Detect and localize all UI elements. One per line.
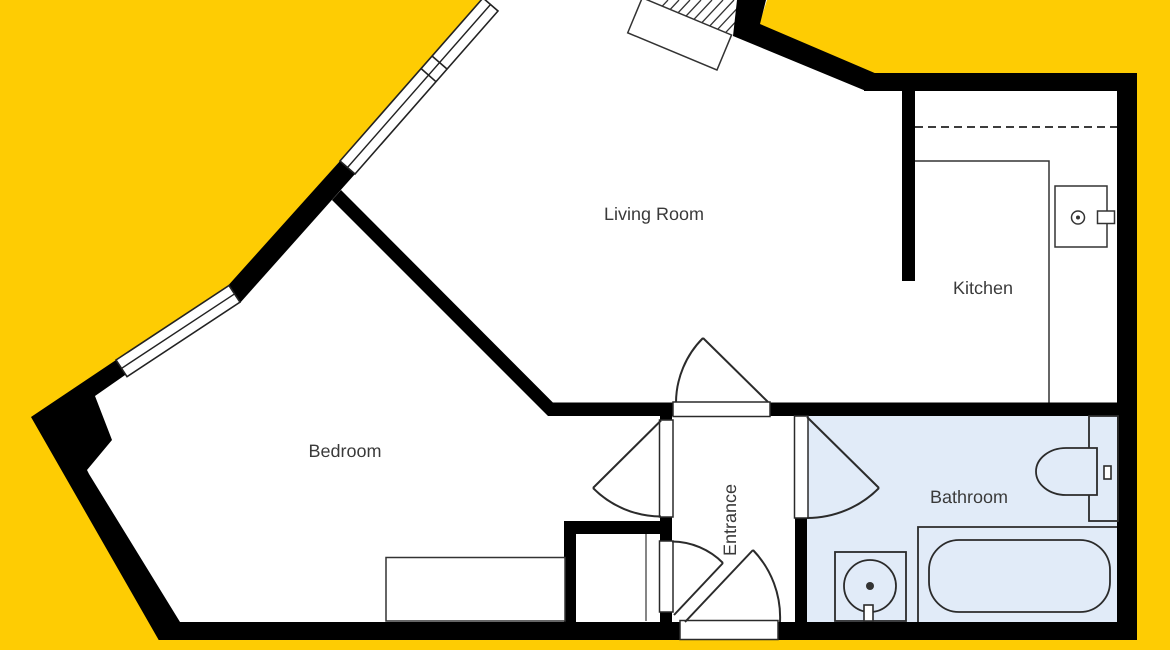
svg-text:Bathroom: Bathroom (930, 487, 1008, 507)
svg-text:Entrance: Entrance (720, 484, 740, 556)
svg-text:Bedroom: Bedroom (308, 441, 381, 461)
svg-text:Living Room: Living Room (604, 204, 704, 224)
svg-text:Kitchen: Kitchen (953, 278, 1013, 298)
